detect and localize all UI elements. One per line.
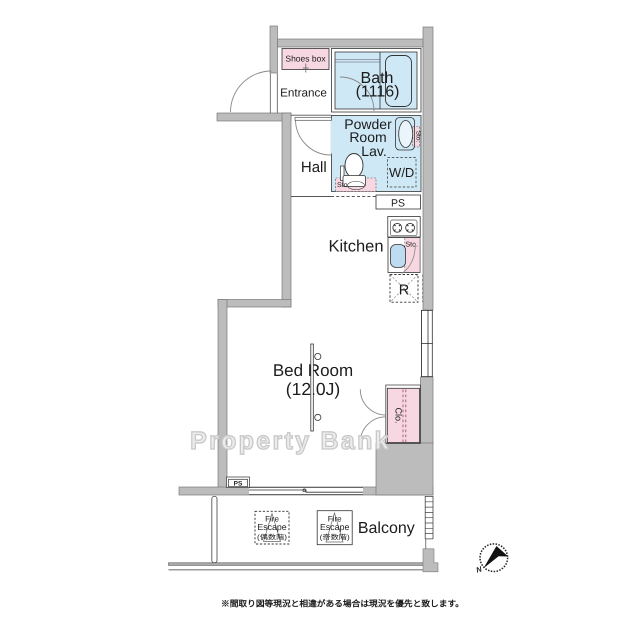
svg-text:Sto.: Sto. [414,131,421,143]
svg-text:R: R [399,283,409,299]
svg-text:Property Bank: Property Bank [190,427,391,455]
svg-text:(1116): (1116) [356,84,400,101]
svg-text:(奇数階): (奇数階) [320,534,350,542]
svg-text:PS: PS [234,480,243,487]
svg-text:(偶数階): (偶数階) [257,534,287,542]
svg-text:Escape: Escape [257,522,286,532]
svg-text:Entrance: Entrance [280,87,327,100]
svg-text:Shoes box: Shoes box [285,54,326,64]
svg-text:Balcony: Balcony [358,520,415,537]
svg-text:Clo.: Clo. [394,407,404,423]
svg-text:PS: PS [391,198,405,210]
svg-text:Lav.: Lav. [361,143,386,159]
svg-text:※間取り図等現況と相違がある場合は現況を優先と致します。: ※間取り図等現況と相違がある場合は現況を優先と致します。 [221,599,464,609]
svg-text:Escape: Escape [320,522,349,532]
svg-text:Kitchen: Kitchen [328,238,383,256]
svg-text:W/D: W/D [389,165,414,180]
svg-text:Sto.: Sto. [337,182,350,189]
svg-text:Sto.: Sto. [406,242,419,249]
svg-text:Hall: Hall [301,159,327,176]
